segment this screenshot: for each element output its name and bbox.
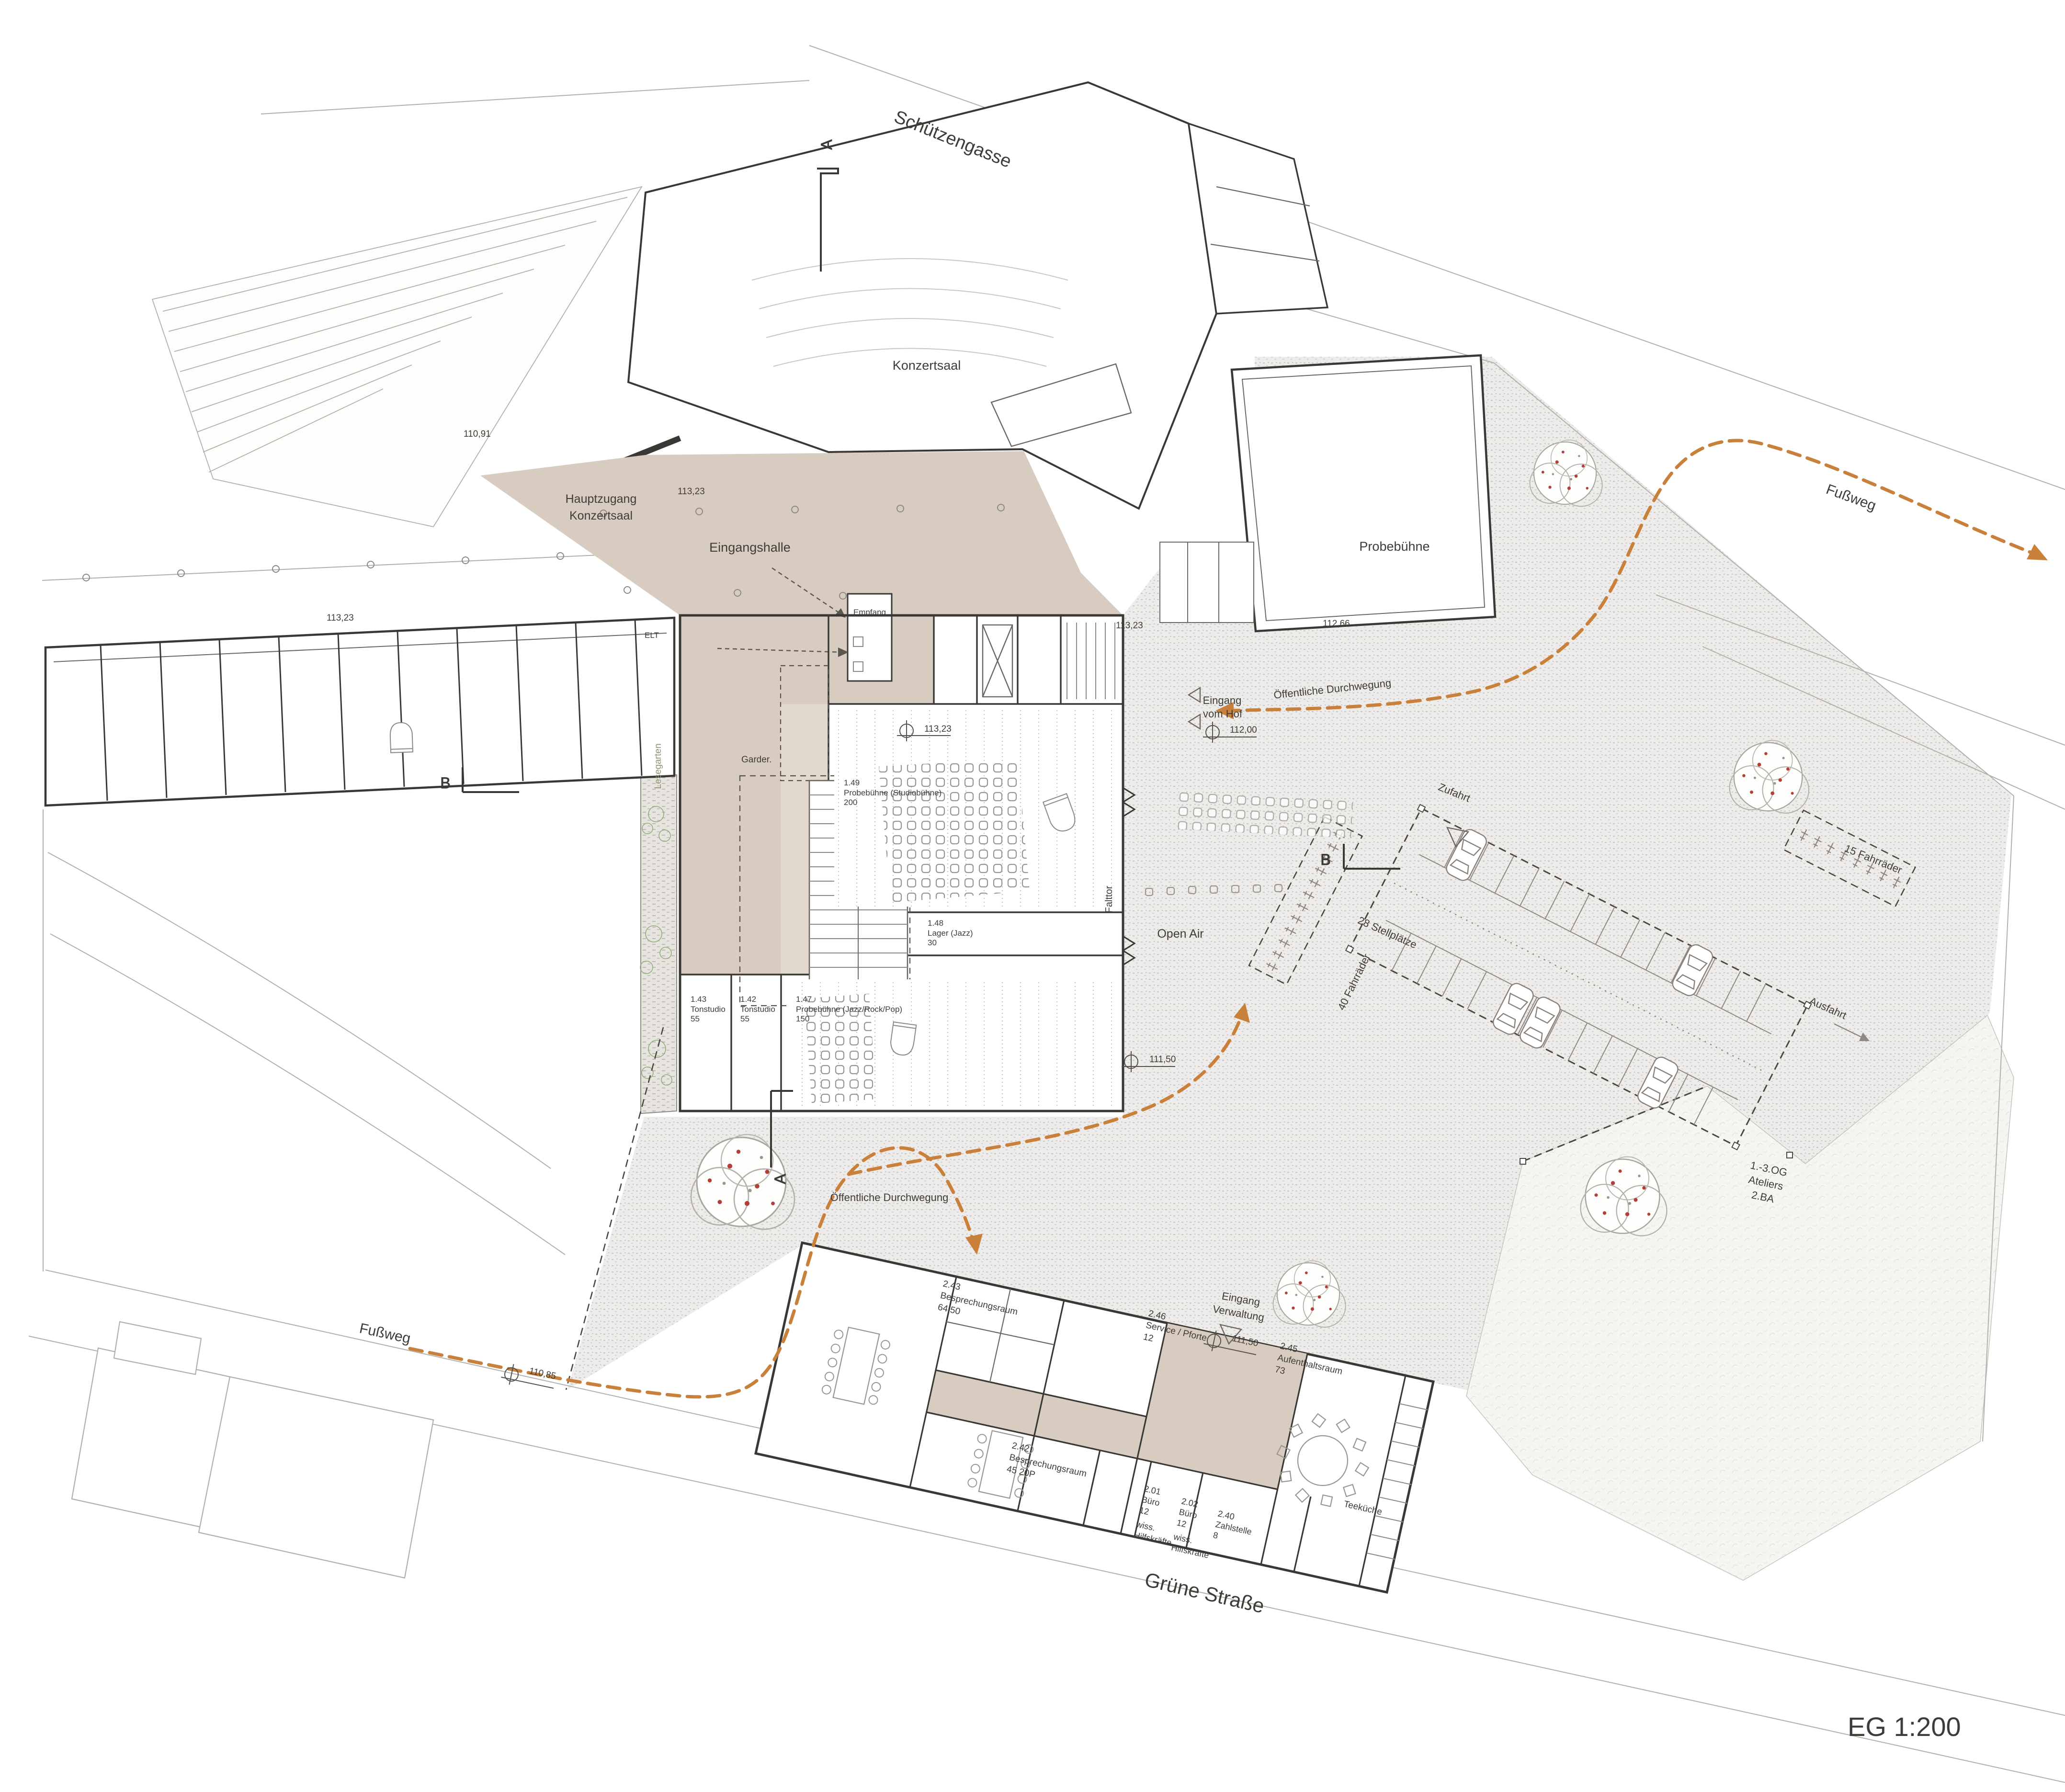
elevation-value: 112,66	[1323, 619, 1350, 629]
existing-buildings	[72, 1322, 433, 1578]
elevation-value: 110,91	[464, 429, 491, 439]
room-name: Lager (Jazz)	[928, 929, 973, 938]
elevation-value: 112,00	[1230, 725, 1257, 735]
access-label: Hauptzugang	[566, 492, 637, 506]
room-name: Tonstudio	[691, 1005, 726, 1014]
piano-icon	[390, 722, 413, 753]
elevation-value: 111,50	[1149, 1055, 1176, 1065]
room-label: Eingangshalle	[709, 540, 791, 555]
room-area: 30	[928, 938, 937, 947]
section-label: A	[772, 1174, 789, 1184]
room-name: Probebühne (Jazz/Rock/Pop)	[796, 1005, 902, 1014]
elevator	[983, 625, 1012, 697]
room-area: 12	[1142, 1332, 1154, 1344]
room-label: Konzertsaal	[893, 358, 961, 373]
section-label: A	[818, 139, 835, 150]
reading-garden	[641, 775, 677, 1113]
footpath-label: Fußweg	[358, 1320, 412, 1347]
room-id: 1.43	[691, 995, 706, 1004]
boundary-marker	[1787, 1152, 1793, 1158]
boundary-marker	[1520, 1158, 1526, 1164]
room-area: 150	[796, 1014, 809, 1023]
room-area: 55	[740, 1014, 749, 1023]
footpath-label: Fußweg	[1824, 481, 1878, 514]
site-label: Open Air	[1157, 927, 1203, 941]
elevation-value: 113,23	[924, 724, 952, 734]
entrance-label: Eingang	[1203, 694, 1242, 706]
elevation-value: 110,85	[528, 1366, 557, 1381]
elevation-value: 113,23	[1116, 621, 1143, 631]
room-id: 1.49	[844, 778, 860, 787]
room-area: 12	[1176, 1518, 1187, 1529]
architectural-site-plan: { "scale_label": "EG 1:200", "streets": …	[0, 0, 2065, 1792]
room-area: 55	[691, 1014, 700, 1023]
room-label: Garder.	[741, 755, 772, 765]
floor-plan-svg: A A B B Schützengasse Fußweg Fußweg Grün…	[0, 0, 2065, 1792]
reception-desk	[848, 594, 892, 681]
access-label: Konzertsaal	[569, 509, 633, 522]
room-label: Empfang	[853, 608, 886, 617]
room-label: ELT	[645, 631, 659, 640]
room-149-seats	[879, 759, 1030, 903]
building-left-wing	[45, 618, 674, 805]
room-id: 1.47	[796, 995, 812, 1004]
room-area: 73	[1274, 1364, 1286, 1376]
building-probebuehne	[1160, 355, 1495, 631]
elevation-value: 113,23	[327, 613, 354, 623]
section-label: B	[440, 774, 450, 792]
section-label: B	[1320, 851, 1330, 868]
elevation-value: 113,23	[678, 487, 705, 497]
room-143-label: 1.43 Tonstudio 55	[691, 995, 726, 1023]
door-label: Falttor	[1104, 885, 1114, 913]
scale-label: EG 1:200	[1848, 1712, 1961, 1742]
room-name: Tonstudio	[740, 1005, 775, 1014]
stair-side	[1160, 542, 1254, 623]
room-148-label: 1.48 Lager (Jazz) 30	[928, 919, 973, 947]
garden-label: Lesegarten	[653, 743, 663, 789]
room-name: Probebühne (Studiobühne)	[844, 788, 942, 797]
entrance-label: vom Hof	[1203, 708, 1243, 720]
room-142-label: 1.42 Tonstudio 55	[740, 995, 775, 1023]
room-label: Probebühne	[1359, 539, 1430, 554]
stair-upper	[1067, 623, 1115, 699]
room-id: 1.48	[928, 919, 943, 928]
room-area: 200	[844, 798, 857, 807]
room-area: 12	[1138, 1505, 1150, 1517]
route-label: Öffentliche Durchwegung	[830, 1191, 949, 1203]
street-name: Grüne Straße	[1143, 1568, 1267, 1617]
room-id: 1.42	[740, 995, 756, 1004]
context-band	[42, 548, 673, 581]
